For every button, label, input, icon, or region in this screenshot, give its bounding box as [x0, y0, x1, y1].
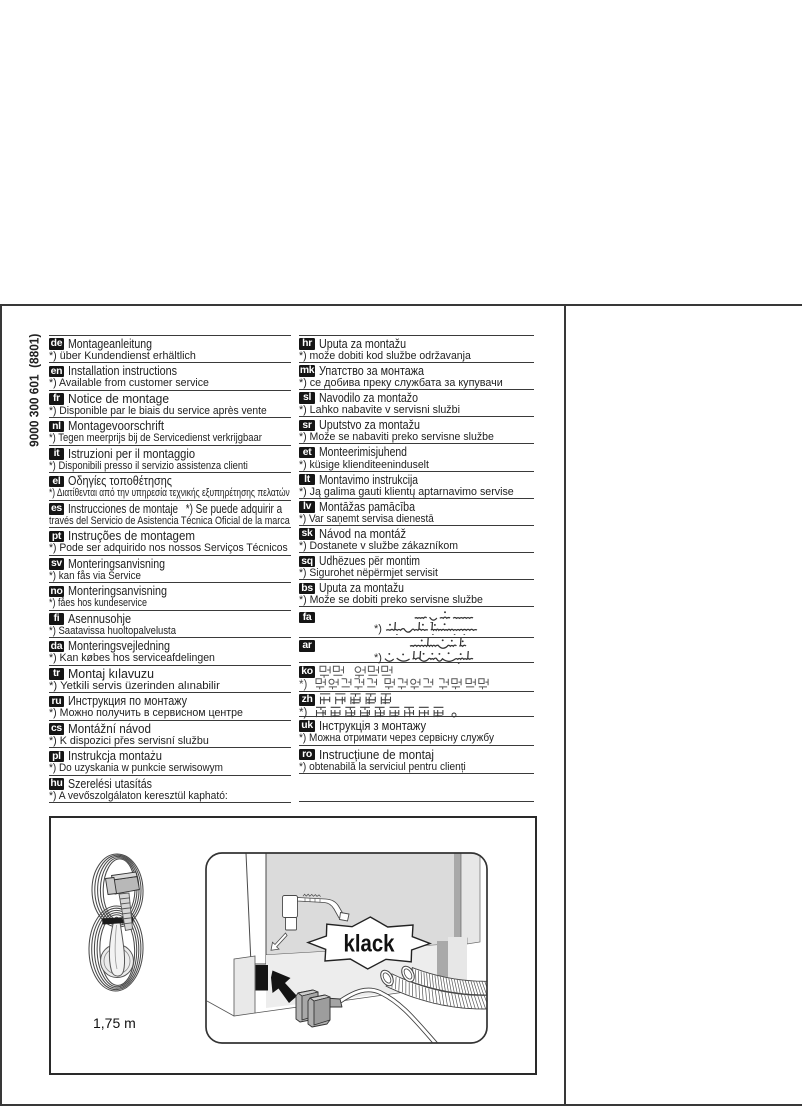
svg-text:*): *) [374, 652, 382, 664]
svg-text:*): *) [299, 679, 307, 691]
svg-text:*): *) [374, 623, 382, 635]
svg-text:*): *) [299, 707, 307, 719]
svg-text:klack: klack [344, 931, 395, 958]
